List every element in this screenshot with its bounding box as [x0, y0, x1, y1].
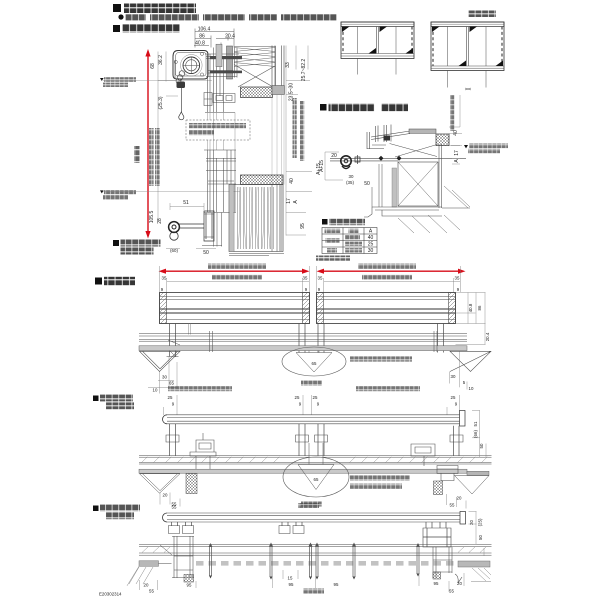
- svg-text:30: 30: [368, 248, 374, 254]
- svg-text:40.8: 40.8: [195, 41, 205, 47]
- svg-text:(35): (35): [346, 180, 354, 185]
- svg-text:15: 15: [288, 576, 293, 581]
- svg-text:20: 20: [457, 581, 462, 586]
- svg-text:65: 65: [314, 477, 319, 482]
- svg-text:35: 35: [318, 276, 323, 281]
- svg-text:86: 86: [199, 34, 205, 40]
- svg-text:106.4: 106.4: [198, 26, 211, 32]
- svg-text:25: 25: [168, 395, 173, 400]
- svg-text:25.7~82.2: 25.7~82.2: [301, 59, 307, 82]
- svg-text:(66): (66): [473, 430, 478, 438]
- svg-text:50: 50: [203, 250, 209, 256]
- svg-text:36.2: 36.2: [158, 55, 164, 65]
- svg-text:35: 35: [455, 276, 460, 281]
- svg-text:(25): (25): [478, 518, 483, 526]
- svg-text:86: 86: [477, 305, 482, 310]
- svg-text:55: 55: [149, 589, 154, 594]
- svg-text:35: 35: [303, 276, 308, 281]
- svg-text:40: 40: [289, 178, 295, 184]
- svg-text:50: 50: [479, 443, 484, 448]
- svg-text:55: 55: [172, 505, 177, 510]
- svg-text:50: 50: [364, 181, 370, 187]
- svg-text:95: 95: [334, 582, 339, 587]
- svg-text:50: 50: [478, 535, 483, 540]
- svg-text:20: 20: [457, 496, 462, 501]
- svg-text:55: 55: [449, 589, 454, 594]
- svg-text:55: 55: [450, 503, 455, 508]
- svg-text:51: 51: [473, 421, 478, 426]
- svg-text:25: 25: [313, 395, 318, 400]
- svg-text:20: 20: [331, 153, 337, 159]
- svg-text:95: 95: [289, 582, 294, 587]
- svg-text:95: 95: [300, 223, 306, 229]
- svg-text:30: 30: [349, 174, 354, 179]
- svg-text:30: 30: [162, 375, 167, 380]
- svg-text:51: 51: [183, 200, 189, 206]
- svg-text:40.8: 40.8: [468, 303, 473, 312]
- svg-text:40: 40: [368, 235, 374, 241]
- svg-text:25: 25: [451, 395, 456, 400]
- svg-text:(60): (60): [170, 248, 178, 253]
- svg-text:10: 10: [469, 386, 474, 391]
- svg-text:65: 65: [312, 361, 317, 366]
- svg-text:E20302314: E20302314: [99, 592, 122, 597]
- svg-text:A+15: A+15: [319, 160, 325, 172]
- svg-text:95: 95: [187, 583, 192, 588]
- svg-text:65: 65: [169, 381, 174, 386]
- svg-text:105.5: 105.5: [149, 211, 155, 224]
- svg-text:25: 25: [295, 395, 300, 400]
- svg-text:17: 17: [286, 198, 292, 204]
- svg-text:30: 30: [451, 374, 456, 379]
- svg-text:(25.3): (25.3): [158, 96, 164, 109]
- svg-text:17: 17: [454, 150, 460, 156]
- svg-text:25: 25: [368, 242, 374, 248]
- svg-text:68: 68: [150, 63, 156, 69]
- svg-text:20.4: 20.4: [485, 332, 490, 341]
- svg-text:10: 10: [153, 388, 158, 393]
- svg-text:20: 20: [163, 493, 168, 498]
- svg-text:95: 95: [434, 581, 439, 586]
- svg-text:35: 35: [162, 276, 167, 281]
- svg-text:40: 40: [453, 130, 459, 136]
- svg-text:20.4: 20.4: [225, 34, 235, 40]
- svg-text:20: 20: [144, 583, 149, 588]
